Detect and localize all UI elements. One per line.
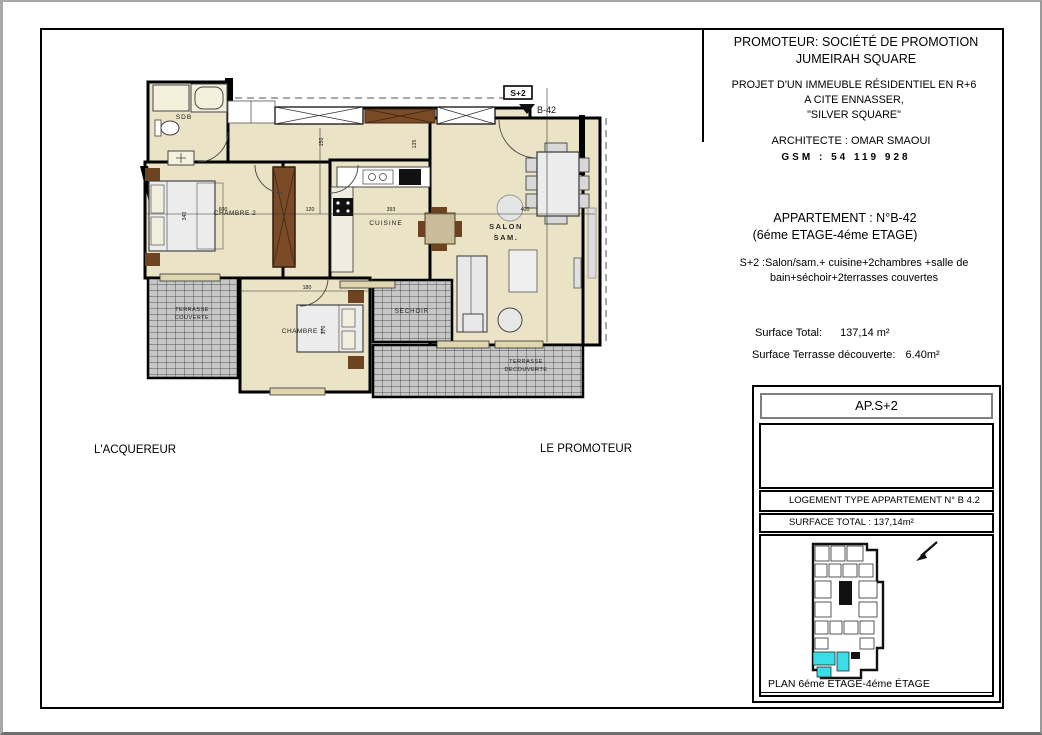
north-arrow-icon xyxy=(916,542,937,561)
promoter-name: JUMEIRAH SQUARE xyxy=(712,52,1000,66)
empty-box xyxy=(759,423,994,489)
apartment-title: APPARTEMENT : N°B-42 xyxy=(700,211,990,225)
console xyxy=(509,250,537,292)
key-plan-drawing xyxy=(761,538,992,680)
header-divider-line xyxy=(702,30,704,142)
pillow xyxy=(151,217,164,245)
room-label-salon: SALON xyxy=(489,222,523,231)
dim-120: 120 xyxy=(306,207,315,213)
dim-400: 400 xyxy=(521,207,530,213)
stove xyxy=(333,198,353,216)
surface-total-row: Surface Total:137,14 m² xyxy=(755,327,995,339)
area-terrasse-decouverte xyxy=(373,345,583,397)
project-line-3: "SILVER SQUARE" xyxy=(706,109,1002,121)
dim-340: 340 xyxy=(182,212,188,221)
surface-total-label: Surface Total: xyxy=(755,327,822,339)
promoter-label: PROMOTEUR: SOCIÉTÉ DE PROMOTION xyxy=(712,35,1000,49)
round-table xyxy=(498,308,522,332)
buyer-signature-label: L'ACQUEREUR xyxy=(94,444,176,456)
service-shafts xyxy=(228,101,495,124)
nightstand xyxy=(145,253,160,266)
surface-terrace-label: Surface Terrasse découverte: xyxy=(752,349,895,361)
room-label-terrasse-couverte-2: COUVERTE xyxy=(175,315,209,321)
key-plan-caption: PLAN 6éme ETAGE-4éme ÉTAGE xyxy=(761,678,992,693)
nightstand xyxy=(348,290,364,303)
oven xyxy=(399,169,421,185)
apartment-floors: (6éme ETAGE-4éme ETAGE) xyxy=(690,228,980,242)
surface-terrace-row: Surface Terrasse découverte:6.40m² xyxy=(752,349,997,361)
pillow xyxy=(342,331,355,349)
dim-150: 150 xyxy=(319,138,325,147)
surface-total-value: 137,14 m² xyxy=(840,327,890,339)
room-label-chambre2: CHAMBRE 2 xyxy=(214,210,256,217)
apartment-type-line-1: S+2 :Salon/sam.+ cuisine+2chambres +sall… xyxy=(706,257,1002,269)
bathtub xyxy=(191,84,227,112)
apartment-type-line-2: bain+séchoir+2terrasses couvertes xyxy=(706,272,1002,284)
dim-393: 393 xyxy=(387,207,396,213)
room-label-terrasse-decouverte-1: TERRASSE xyxy=(509,359,543,365)
area-terrasse-couverte xyxy=(148,278,238,378)
dim-180: 180 xyxy=(303,285,312,291)
logement-type-box: LOGEMENT TYPE APPARTEMENT N° B 4.2 xyxy=(759,490,994,512)
terrace-glass xyxy=(588,208,596,278)
dim-135: 135 xyxy=(412,140,418,149)
plant xyxy=(497,195,523,221)
apartment-code-box: AP.S+2 xyxy=(760,393,993,419)
project-line-1: PROJET D'UN IMMEUBLE RÉSIDENTIEL EN R+6 xyxy=(706,79,1002,91)
room-label-chambre1: CHAMBRE 1 xyxy=(282,328,324,335)
toilet-tank xyxy=(155,120,161,136)
room-label-sechoir: SECHOIR xyxy=(395,309,429,315)
room-label-cuisine: CUISINE xyxy=(369,220,402,227)
room-label-sdb: SDB xyxy=(176,114,192,121)
surface-terrace-value: 6.40m² xyxy=(905,349,939,361)
nightstand xyxy=(348,356,364,369)
wardrobe xyxy=(273,167,295,267)
pillow xyxy=(342,309,355,327)
pouf xyxy=(463,314,483,332)
toilet-icon xyxy=(161,121,179,135)
project-line-2: A CITE ENNASSER, xyxy=(706,94,1002,106)
pillow xyxy=(151,185,164,213)
floor-plan: 600 120 393 400 340 135 150 180 370 S+2 … xyxy=(85,68,645,438)
architect-line: ARCHITECTE : OMAR SMAOUI xyxy=(706,135,996,147)
title-block: AP.S+2 LOGEMENT TYPE APPARTEMENT N° B 4.… xyxy=(752,385,1001,703)
dining-table xyxy=(537,152,579,216)
unit-tag-label: S+2 xyxy=(510,88,526,98)
room-label-terrasse-couverte-1: TERRASSE xyxy=(175,307,209,313)
gsm-line: GSM : 54 119 928 xyxy=(706,152,986,163)
surface-total-box: SURFACE TOTAL : 137,14m² xyxy=(759,513,994,533)
key-plan-box: PLAN 6éme ETAGE-4éme ÉTAGE xyxy=(759,534,994,697)
nightstand xyxy=(145,168,160,181)
key-plan-thumbnail xyxy=(761,538,992,680)
washbasin-counter xyxy=(153,85,189,111)
room-label-sam: SAM. xyxy=(494,233,519,242)
tv-unit xyxy=(574,258,581,288)
hall-table xyxy=(418,207,462,251)
unit-ref-label: B-42 xyxy=(537,105,556,115)
room-label-terrasse-decouverte-2: DECOUVERTE xyxy=(504,367,547,373)
promoter-signature-label: LE PROMOTEUR xyxy=(540,443,632,455)
table xyxy=(425,213,455,244)
